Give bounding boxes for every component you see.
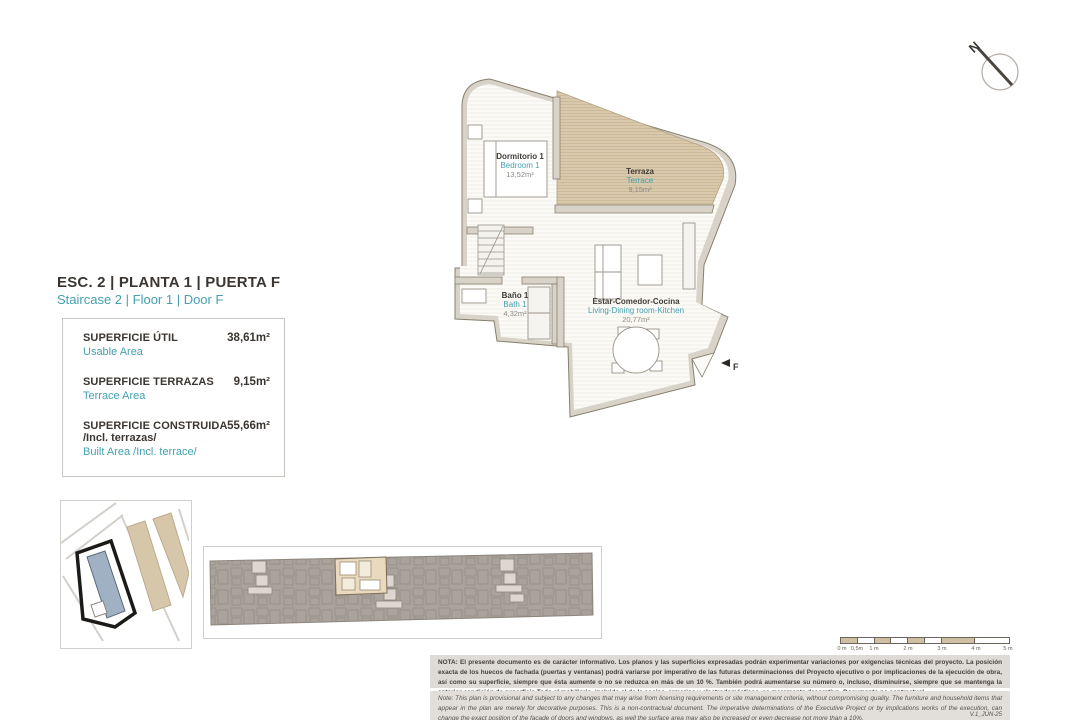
areas-table: SUPERFICIE ÚTIL Usable Area 38,61m² SUPE… [62,318,285,477]
row-value: 38,61m² [227,332,270,344]
scale-tick-label: 2 m [903,646,912,652]
scale-tick-label: 0 m [837,646,846,652]
note-spanish: NOTA: El presente documento es de caráct… [430,655,1010,688]
floor-key-svg [204,547,599,636]
note-english-text: Note: This plan is provisional and subje… [438,694,1002,720]
bedroom-label-en: Bedroom 1 [500,161,540,170]
wall-bath-top-right [522,277,558,284]
wall-living-left [557,277,564,347]
site-plan-svg [61,501,189,646]
site-plan-map [60,500,192,649]
living-label-es: Estar-Comedor-Cocina [592,297,680,306]
living-label-en: Living-Dining room-Kitchen [588,306,684,315]
wall-bath-top-left [455,277,502,284]
bath-label-en: Bath 1 [503,300,527,309]
floor-key-plan [203,546,602,639]
floor-plan: F Dormitorio 1 Bedroom 1 13,52m² Terraza… [440,55,770,435]
table-row: SUPERFICIE TERRAZAS Terrace Area 9,15m² [83,376,270,402]
wall-terrace-living [555,205,714,213]
dining-table-icon [612,327,662,373]
terrace-label-en: Terrace [627,176,654,185]
scale-tick-label: 4 m [971,646,980,652]
row-label-en: Built Area /Incl. terrace/ [83,446,270,458]
row-label-en: Usable Area [83,346,270,358]
plan-sheet: N [0,0,1080,720]
row-label-en: Terrace Area [83,390,270,402]
row-value: 55,66m² [227,420,270,432]
row-label-es2: /Incl. terrazas/ [83,432,270,444]
bath-label-area: 4,32m² [503,309,527,318]
table-row: SUPERFICIE ÚTIL Usable Area 38,61m² [83,332,270,358]
bedroom-label-area: 13,52m² [506,170,534,179]
north-arrow: N [960,32,1040,104]
terrace-label-es: Terraza [626,167,654,176]
bath-label-es: Baño 1 [502,291,529,300]
page-subtitle: Staircase 2 | Floor 1 | Door F [57,292,223,307]
door-label: F [733,362,739,372]
version-label: V.1_JUN-25 [970,712,1002,718]
wall-bedroom-terrace [553,97,560,179]
page-title: ESC. 2 | PLANTA 1 | PUERTA F [57,274,280,291]
strip-highlighted-unit [335,557,387,595]
scale-tick-label: 1 m [869,646,878,652]
scale-tick-label: 5 m [1003,646,1012,652]
note-english: Note: This plan is provisional and subje… [430,691,1010,720]
living-label-area: 20,77m² [622,315,650,324]
terrace-label-area: 9,15m² [628,185,652,194]
north-label: N [966,38,983,55]
stairs-icon [478,225,504,275]
table-row: SUPERFICIE CONSTRUIDA /Incl. terrazas/ B… [83,420,270,458]
sofa-icon [595,245,621,299]
scale-tick-label: 0,5m [851,646,863,652]
scale-bar-segments [840,637,1010,644]
door-arrow-icon [721,359,730,367]
kitchen-counter-icon [683,223,695,289]
scale-tick-label: 3 m [937,646,946,652]
bedroom-label-es: Dormitorio 1 [496,152,544,161]
row-value: 9,15m² [234,376,270,388]
scale-bar: 0 m 0,5m 1 m 2 m 3 m 4 m 5 m [840,637,1010,653]
armchair-icon [638,255,662,285]
site-buildings [127,513,189,611]
